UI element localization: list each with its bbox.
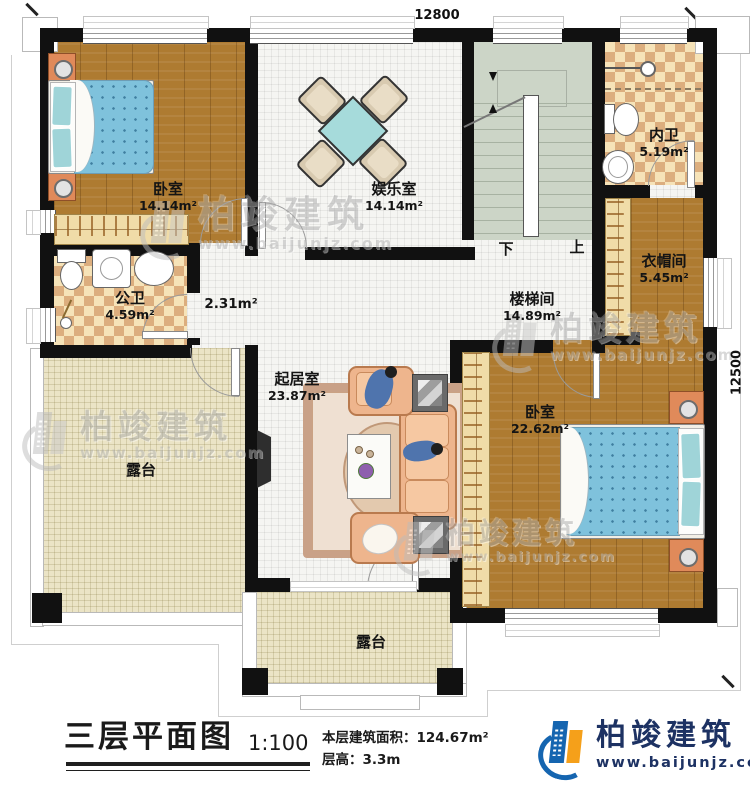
plan-scale: 1:100 [248,731,309,755]
title-underline-thin [66,770,310,771]
room-label-bedroom2: 卧室 22.62m² [511,403,569,436]
room-name: 楼梯间 [503,290,561,308]
stair-direction-arrow [489,104,497,113]
watermark-url: www.baijunjz.com [550,345,735,366]
floor-plan: 柏竣建筑 www.baijunjz.com 柏竣建筑 www.baijunjz.… [0,0,750,789]
stairs-down-text: 下 [498,240,513,258]
window [493,28,562,44]
dimension-tick [721,675,734,688]
watermark-name: 柏竣建筑 [446,519,616,548]
room-name: 露台 [126,461,156,479]
side-table [412,374,448,412]
person-head [431,443,443,455]
brand-name: 柏竣建筑 [596,721,750,751]
room-label-hallway: 2.31m² [204,296,257,312]
room-name: 衣帽间 [639,252,688,270]
watermark-url: www.baijunjz.com [80,443,265,464]
room-name: 卧室 [511,403,569,421]
wall-living-bottom [258,578,290,592]
brand-block: 柏竣建筑 www.baijunjz.com [538,719,750,773]
wall-living-west [245,345,258,592]
room-area: 14.14m² [139,198,197,213]
flower-vase-icon [358,463,374,479]
plot-line [487,690,741,691]
sink-basin [608,156,628,178]
wall-bedroom2-bottom [658,608,717,623]
room-area: 5.19m² [639,144,688,159]
lamp-icon [679,400,698,419]
towel-bar [605,67,643,69]
wall-ensuite-bottom [695,185,703,198]
pillow [680,433,702,480]
pillow [680,481,702,528]
window [505,608,658,625]
window-sill [620,16,689,29]
towel-ring-icon [640,61,656,77]
ac-platform [717,588,738,627]
title-underline [66,762,310,766]
pillow [51,128,72,169]
dimension-right: 12500 [730,308,745,438]
stairs-down-label: 下 [498,240,513,258]
column [32,593,62,623]
pillow [51,86,72,127]
room-name: 露台 [356,633,386,651]
room-area: 2.31m² [204,296,257,312]
room-name: 卧室 [139,180,197,198]
wall-living-bottom [415,578,463,592]
room-area: 22.62m² [511,421,569,436]
room-label-terrace-left: 露台 [126,461,156,479]
chair-seat [367,82,402,117]
room-area: 23.87m² [268,388,326,403]
terrace-step [300,695,420,710]
nightstand [48,172,76,201]
window-sill [83,16,209,29]
window-sill [493,16,564,29]
stair-direction-arrow [489,72,497,81]
window-sill [505,624,660,637]
door-leaf [142,331,188,339]
dimension-tick [25,3,38,16]
window [250,28,413,44]
cup-icon [355,446,363,454]
room-name: 公卫 [105,289,154,307]
wall-bedroom2-bottom [450,608,505,623]
watermark: 柏竣建筑 www.baijunjz.com [22,410,265,464]
terrace-railing [30,348,44,627]
toilet-icon [613,103,639,136]
nightstand [669,539,704,572]
floor-height-value: 3.3m [363,752,401,768]
nightstand [669,391,704,424]
page-title: 三层平面图 [64,722,234,753]
floor-area-label: 本层建筑面积： [322,730,417,746]
washer-drum [100,257,123,280]
floor-height-note: 层高：3.3m [322,750,400,771]
plot-line [11,644,219,645]
wall-publicbath-bottom [40,345,192,358]
chair-seat [304,146,339,181]
room-label-living: 起居室 23.87m² [268,370,326,403]
brand-logo-icon [538,719,586,773]
room-area: 14.89m² [503,308,561,323]
watermark: 柏竣建筑 www.baijunjz.com [392,518,616,568]
brand-logo-icon [22,410,70,464]
nightstand [48,53,76,82]
floor-drain-icon [60,317,72,329]
room-name: 起居室 [268,370,326,388]
watermark-name: 柏竣建筑 [550,312,735,345]
window [620,28,687,44]
stairs-up-text: 上 [569,238,584,256]
lamp-icon [54,179,73,198]
terrace-railing [42,612,247,626]
room-area: 4.59m² [105,307,154,322]
floor-height-label: 层高： [322,752,363,768]
floor-area-value: 124.67m² [417,730,489,746]
column [242,668,268,695]
room-label-stairwell: 楼梯间 14.89m² [503,290,561,323]
plot-line [218,716,488,717]
room-label-public-bath: 公卫 4.59m² [105,289,154,322]
window-sill [250,16,415,29]
room-name: 内卫 [639,126,688,144]
watermark-url: www.baijunjz.com [446,548,616,567]
stairs-up-label: 上 [569,238,584,256]
cup-icon [366,450,374,458]
room-area: 14.14m² [365,198,423,213]
door-leaf [231,348,240,396]
stair-rail [523,95,539,237]
room-label-terrace-bottom: 露台 [356,633,386,651]
dimension-top: 12800 [414,8,459,23]
room-label-bedroom1: 卧室 14.14m² [139,180,197,213]
plot-line [218,644,219,717]
room-area: 5.45m² [639,270,688,285]
column [437,668,463,695]
threshold [290,581,417,592]
lamp-icon [679,548,698,567]
wall-ensuite-bottom [592,185,650,198]
wardrobe-bedroom2 [462,352,490,607]
plot-line [11,55,12,645]
window [40,308,56,342]
shower-curtain-line [605,88,701,90]
window-sill [26,210,41,235]
room-label-ensuite: 内卫 5.19m² [639,126,688,159]
toilet-icon [60,261,83,290]
lamp-icon [54,60,73,79]
window [83,28,207,44]
watermark-name: 柏竣建筑 [80,410,265,443]
wall-recreation-stair [462,42,474,240]
brand-logo-icon [394,520,434,566]
room-label-cloakroom: 衣帽间 5.45m² [639,252,688,285]
watermark-url: www.baijunjz.com [198,233,393,255]
floor-terrace-bottom [255,592,452,683]
wall-publicbath-right [187,338,200,345]
person-head [385,366,397,378]
room-label-recreation: 娱乐室 14.14m² [365,180,423,213]
side-table-top [418,380,442,406]
sofa-cushion [405,480,449,513]
brand-url: www.baijunjz.com [596,756,750,771]
floor-area-note: 本层建筑面积：124.67m² [322,728,489,749]
window-sill [26,308,41,344]
plot-line [487,690,488,717]
room-name: 娱乐室 [365,180,423,198]
chair-seat [366,145,401,180]
